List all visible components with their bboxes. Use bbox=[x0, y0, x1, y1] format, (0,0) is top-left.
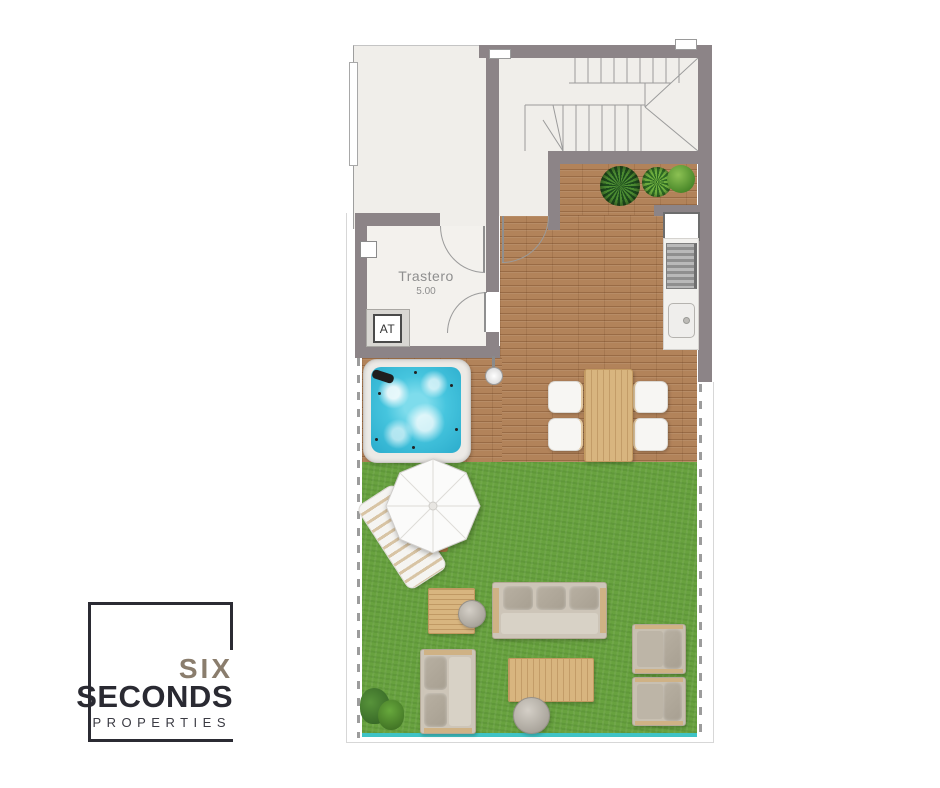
parasol-umbrella bbox=[385, 458, 481, 554]
coffee-table bbox=[508, 658, 594, 702]
garden-bush bbox=[378, 700, 404, 730]
boundary-dash-right bbox=[699, 384, 702, 738]
wall-center-vertical bbox=[486, 45, 499, 292]
potted-plant-round bbox=[667, 165, 695, 193]
plan-left-edge-line bbox=[346, 213, 347, 742]
door-leaf-hall-deck bbox=[502, 216, 504, 262]
room-top-left-floor bbox=[353, 45, 487, 229]
hallway-floor bbox=[499, 151, 548, 216]
armchair bbox=[632, 624, 686, 674]
door-leaf-storage-deck bbox=[484, 292, 486, 332]
jacuzzi-jet bbox=[455, 428, 458, 431]
wall-hallway-right bbox=[548, 164, 560, 230]
storage-room-area: 5.00 bbox=[370, 286, 482, 297]
utility-box: AT bbox=[373, 314, 402, 343]
jacuzzi-jet bbox=[412, 446, 415, 449]
shower-head bbox=[485, 367, 503, 385]
armchair-back-cushion bbox=[663, 682, 682, 721]
utility-label: AT bbox=[380, 322, 395, 336]
storage-window bbox=[360, 241, 377, 258]
sofa-seat bbox=[501, 613, 598, 634]
sofa-arm bbox=[600, 588, 606, 633]
armchair-seat bbox=[637, 631, 663, 667]
armchair bbox=[632, 677, 686, 726]
plan-bottom-edge-line bbox=[346, 742, 714, 743]
sofa-three-seat bbox=[492, 582, 607, 639]
jacuzzi-jet bbox=[450, 384, 453, 387]
sofa-back-cushion bbox=[424, 656, 447, 690]
sofa-back-cushion bbox=[503, 586, 533, 610]
jacuzzi-jet bbox=[378, 392, 381, 395]
dining-table bbox=[584, 369, 633, 462]
grill bbox=[666, 243, 697, 289]
plan-right-edge-line bbox=[713, 382, 714, 742]
armchair-back-cushion bbox=[663, 629, 682, 669]
storage-room-label: Trastero bbox=[370, 268, 482, 284]
wall-storage-top bbox=[355, 213, 440, 226]
sofa-arm bbox=[493, 588, 499, 633]
armchair-frame bbox=[635, 669, 683, 673]
kitchen-window bbox=[663, 212, 700, 241]
room-left-window bbox=[349, 62, 358, 166]
boundary-dash-left bbox=[357, 358, 360, 738]
wall-tick-center bbox=[489, 49, 511, 59]
sink bbox=[668, 303, 695, 338]
floor-plan-page: Trastero 5.00 AT bbox=[0, 0, 940, 788]
dining-chair bbox=[633, 418, 668, 451]
wall-stair-bottom bbox=[548, 151, 712, 164]
wall-storage-bottom bbox=[355, 346, 500, 358]
wall-right bbox=[698, 45, 712, 382]
door-leaf-storage-entry bbox=[483, 226, 485, 272]
sofa-arm bbox=[424, 728, 472, 733]
potted-plant-spiky bbox=[600, 166, 640, 206]
dining-chair bbox=[548, 418, 583, 451]
dining-chair bbox=[633, 381, 668, 413]
sofa-back-cushion bbox=[569, 586, 599, 610]
dining-chair bbox=[548, 381, 583, 413]
armchair-seat bbox=[637, 684, 663, 719]
brand-logo: SIX SECONDS PROPERTIES bbox=[88, 602, 233, 742]
sofa-back-cushion bbox=[536, 586, 566, 610]
sink-drain bbox=[683, 317, 690, 324]
stone-table-small bbox=[458, 600, 486, 628]
wall-tick-top bbox=[675, 39, 697, 50]
logo-word-seconds: SECONDS bbox=[76, 679, 233, 715]
sofa-seat bbox=[449, 657, 471, 726]
sofa-two-seat bbox=[420, 649, 476, 734]
logo-frame-right-segment bbox=[230, 605, 233, 650]
jacuzzi-jet bbox=[375, 438, 378, 441]
stone-table-large bbox=[513, 697, 550, 734]
armchair-frame bbox=[635, 721, 683, 725]
sofa-back-cushion bbox=[424, 693, 447, 727]
staircase bbox=[499, 58, 698, 151]
jacuzzi-jet bbox=[414, 371, 417, 374]
sofa-arm bbox=[424, 650, 472, 655]
logo-word-properties: PROPERTIES bbox=[92, 715, 231, 730]
